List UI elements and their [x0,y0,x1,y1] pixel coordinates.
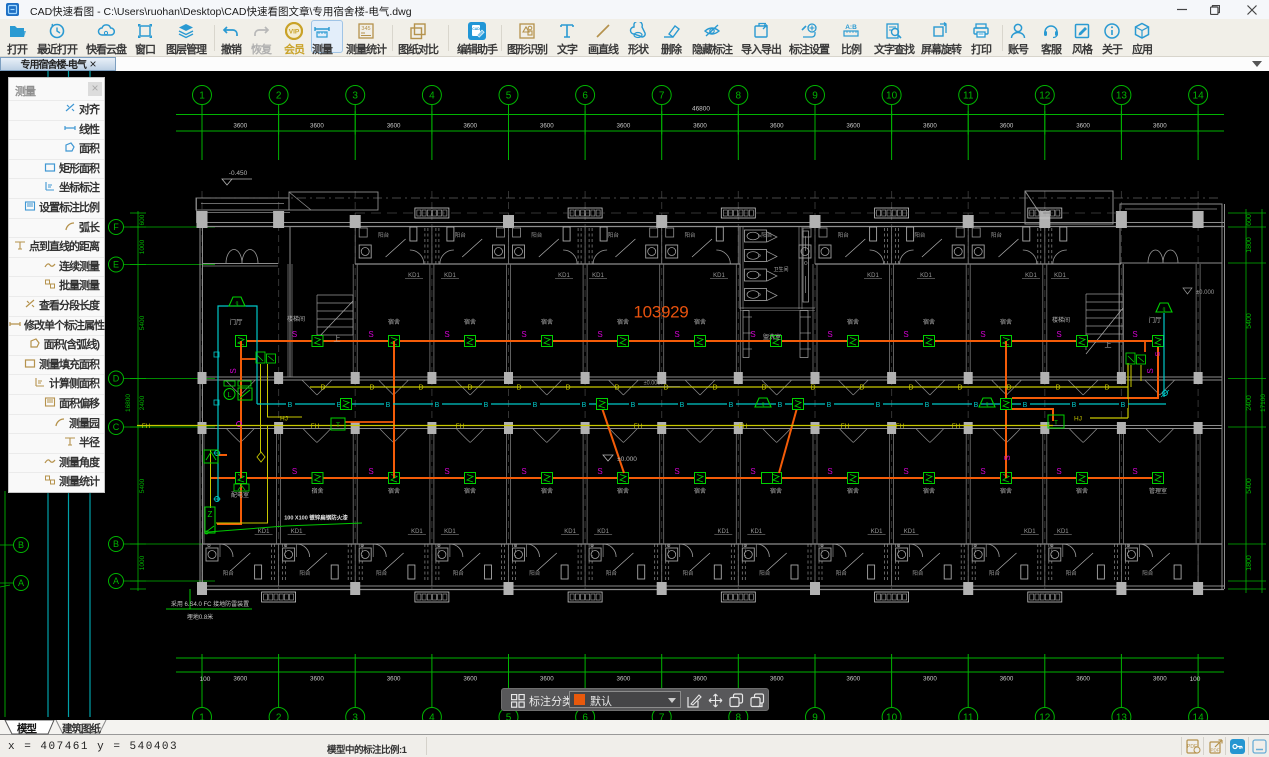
svg-text:100 X100 镀锌扁钢防火漆: 100 X100 镀锌扁钢防火漆 [284,514,348,522]
svg-text:宿舍: 宿舍 [617,318,629,326]
svg-text:宿舍: 宿舍 [923,318,935,326]
svg-text:B: B [925,402,930,409]
svg-text:11: 11 [963,713,974,721]
svg-text:CAD: CAD [472,27,480,31]
svg-text:2400: 2400 [1246,395,1253,411]
svg-text:D: D [1055,385,1060,392]
svg-text:KD1: KD1 [1024,529,1036,535]
svg-text:阳台: 阳台 [989,569,1001,577]
svg-text:3600: 3600 [617,123,631,130]
svg-text:阳台: 阳台 [531,231,543,239]
svg-text:E: E [113,260,119,270]
svg-text:B: B [729,402,734,409]
svg-text:T: T [336,422,340,429]
svg-text:S: S [903,330,908,339]
svg-text:KD1: KD1 [713,273,725,279]
svg-text:±0.000: ±0.000 [644,381,661,387]
svg-text:阳台: 阳台 [682,569,694,577]
svg-text:D: D [957,385,962,392]
svg-text:阳台: 阳台 [606,569,618,577]
svg-text:6: 6 [582,91,588,102]
svg-text:D: D [320,385,325,392]
svg-text:11: 11 [963,91,974,102]
svg-text:埋地0.8米: 埋地0.8米 [187,613,213,621]
svg-text:宿舍: 宿舍 [1076,487,1088,495]
svg-text:S: S [597,330,602,339]
svg-text:阳台: 阳台 [299,569,311,577]
svg-text:阳台: 阳台 [223,569,235,577]
svg-text:FH: FH [142,423,151,430]
svg-text:100: 100 [200,676,211,683]
svg-text:3600: 3600 [846,123,860,130]
svg-text:B: B [113,539,119,549]
svg-text:VIP: VIP [289,29,300,36]
svg-text:D: D [761,385,766,392]
svg-text:D: D [113,374,120,384]
svg-text:宿舍: 宿舍 [388,487,400,495]
svg-text:KD1: KD1 [592,273,604,279]
svg-text:S: S [980,467,985,476]
svg-text:3600: 3600 [923,676,937,683]
svg-text:B: B [680,402,685,409]
svg-text:HJ: HJ [1074,416,1082,423]
svg-text:KD1: KD1 [444,529,456,535]
svg-text:门厅: 门厅 [230,317,244,326]
svg-text:7: 7 [659,713,665,721]
svg-text:D: D [369,385,374,392]
svg-text:D: D [1104,385,1109,392]
svg-text:FH: FH [456,423,465,430]
svg-text:KD1: KD1 [867,273,879,279]
svg-text:PDF: PDF [1211,748,1220,753]
svg-text:KD1: KD1 [564,529,576,535]
svg-text:S: S [827,330,832,339]
svg-text:5: 5 [506,91,512,102]
svg-text:KD1: KD1 [411,529,423,535]
svg-text:FH: FH [634,423,643,430]
svg-text:KD1: KD1 [258,529,270,535]
svg-text:14: 14 [1193,91,1205,102]
svg-text:-0.450: -0.450 [229,170,248,177]
svg-text:宿舍: 宿舍 [388,318,400,326]
svg-text:S: S [750,467,755,476]
svg-text:17100: 17100 [1260,394,1267,412]
svg-text:S: S [292,467,297,476]
svg-text:2400: 2400 [139,395,146,410]
svg-text:KD1: KD1 [444,273,456,279]
svg-text:9: 9 [812,91,818,102]
svg-text:103929: 103929 [634,303,689,322]
svg-text:B: B [288,402,293,409]
svg-text:阳台: 阳台 [684,231,696,239]
svg-text:10: 10 [886,91,898,102]
svg-text:宿舍: 宿舍 [1000,318,1012,326]
svg-text:1: 1 [199,713,205,721]
svg-text:600: 600 [139,214,146,225]
svg-text:3600: 3600 [233,676,247,683]
svg-text:S: S [597,467,602,476]
svg-text:宿舍: 宿舍 [541,487,553,495]
svg-text:D: D [1006,385,1011,392]
svg-text:3600: 3600 [1076,123,1090,130]
svg-text:3600: 3600 [846,676,860,683]
svg-text:3600: 3600 [1153,676,1167,683]
svg-text:阳台: 阳台 [759,569,771,577]
svg-text:B: B [876,402,881,409]
svg-text:5400: 5400 [139,478,146,493]
svg-text:345: 345 [361,26,370,32]
svg-text:B: B [582,402,587,409]
svg-text:KD1: KD1 [904,529,916,535]
svg-text:KD1: KD1 [597,529,609,535]
svg-text:S: S [444,330,449,339]
svg-text:楼梯间: 楼梯间 [1052,316,1070,324]
svg-text:3600: 3600 [617,676,631,683]
svg-text:阳台: 阳台 [455,231,467,239]
svg-text:宿舍: 宿舍 [541,318,553,326]
svg-text:14: 14 [1193,713,1205,721]
svg-text:B: B [827,402,832,409]
svg-text:宿舍: 宿舍 [617,487,629,495]
svg-text:阳台: 阳台 [376,569,388,577]
svg-text:KD1: KD1 [558,273,570,279]
svg-text:B: B [435,402,440,409]
svg-text:3600: 3600 [387,676,401,683]
svg-text:阳台: 阳台 [836,569,848,577]
svg-text:S: S [674,467,679,476]
svg-text:12: 12 [1039,91,1051,102]
svg-text:宿舍: 宿舍 [311,487,323,495]
svg-text:B: B [631,402,636,409]
svg-text:T: T [1054,420,1058,427]
svg-text:16800: 16800 [125,394,132,412]
svg-text:3600: 3600 [1000,676,1014,683]
svg-text:3600: 3600 [770,123,784,130]
svg-text:管理室: 管理室 [1149,487,1167,495]
svg-text:S: S [368,330,373,339]
svg-text:宿舍: 宿舍 [1000,487,1012,495]
svg-text:KD1: KD1 [408,273,420,279]
svg-text:FH: FH [841,423,850,430]
svg-text:宿舍: 宿舍 [464,318,476,326]
svg-text:5400: 5400 [1246,313,1253,329]
svg-text:2: 2 [276,91,282,102]
svg-text:宿舍: 宿舍 [464,487,476,495]
svg-text:KD1: KD1 [717,529,729,535]
svg-text:B: B [18,540,24,550]
svg-text:3600: 3600 [310,676,324,683]
svg-text:KD1: KD1 [1057,529,1069,535]
svg-text:6: 6 [582,713,588,721]
svg-text:3600: 3600 [693,123,707,130]
svg-text:阳台: 阳台 [1066,569,1078,577]
svg-text:FH: FH [896,423,905,430]
svg-text:S: S [1056,330,1061,339]
svg-text:S: S [903,467,908,476]
svg-text:A: A [113,576,119,586]
svg-text:B: B [1121,402,1126,409]
svg-text:q: q [236,301,239,307]
svg-text:B: B [533,402,538,409]
svg-text:D: D [712,385,717,392]
svg-text:宿舍: 宿舍 [694,487,706,495]
svg-text:3600: 3600 [540,123,554,130]
svg-text:4: 4 [429,713,435,721]
svg-text:FH: FH [739,423,748,430]
svg-text:8: 8 [736,713,742,721]
svg-text:13: 13 [1116,91,1128,102]
svg-text:D: D [663,385,668,392]
svg-text:D: D [516,385,521,392]
svg-text:q: q [762,402,765,408]
svg-text:4: 4 [429,91,435,102]
svg-text:KD1: KD1 [871,529,883,535]
svg-text:S: S [827,467,832,476]
svg-text:S: S [674,330,679,339]
svg-text:上: 上 [334,334,341,343]
svg-text:q: q [1163,307,1166,313]
svg-text:KD1: KD1 [750,529,762,535]
svg-text:宿舍: 宿舍 [847,487,859,495]
svg-text:S: S [292,330,297,339]
svg-text:S: S [1132,330,1137,339]
svg-text:C: C [113,422,120,432]
svg-text:A:B: A:B [845,24,857,31]
svg-text:阳台: 阳台 [1142,569,1154,577]
svg-text:D: D [810,385,815,392]
svg-text:S: S [229,368,238,373]
svg-text:9: 9 [812,713,818,721]
svg-text:B: B [1072,402,1077,409]
svg-text:B: B [386,402,391,409]
svg-text:13: 13 [1116,713,1128,721]
svg-text:L: L [228,392,232,399]
svg-text:阳台: 阳台 [529,569,541,577]
svg-text:3600: 3600 [1153,123,1167,130]
svg-text:S: S [1056,467,1061,476]
svg-text:KD1: KD1 [920,273,932,279]
svg-text:阳台: 阳台 [838,231,850,239]
svg-text:B: B [974,402,979,409]
svg-text:D: D [565,385,570,392]
svg-text:A: A [18,578,24,588]
svg-text:阳台: 阳台 [608,231,620,239]
svg-text:5400: 5400 [139,315,146,330]
svg-text:S: S [444,467,449,476]
svg-text:S: S [980,330,985,339]
svg-text:3600: 3600 [387,123,401,130]
svg-text:7: 7 [659,91,665,102]
svg-text:1000: 1000 [139,555,146,570]
svg-text:12: 12 [1039,713,1051,721]
svg-text:楼梯间: 楼梯间 [287,315,305,323]
svg-text:阳台: 阳台 [378,231,390,239]
svg-text:1800: 1800 [1246,555,1253,571]
svg-text:±0.000: ±0.000 [1196,290,1215,296]
svg-text:D: D [418,385,423,392]
svg-text:q: q [986,402,989,408]
svg-text:S: S [521,330,526,339]
svg-text:S: S [1155,351,1162,356]
svg-text:D: D [614,385,619,392]
svg-text:阳台: 阳台 [761,231,773,239]
svg-text:±0.000: ±0.000 [617,456,637,463]
svg-text:600: 600 [1246,214,1253,226]
svg-text:1: 1 [199,91,205,102]
svg-text:100: 100 [1190,676,1201,683]
svg-text:3600: 3600 [540,676,554,683]
svg-text:B: B [484,402,489,409]
svg-text:3600: 3600 [923,123,937,130]
svg-text:D: D [467,385,472,392]
svg-text:3600: 3600 [233,123,247,130]
svg-text:FH: FH [952,423,961,430]
svg-text:3600: 3600 [463,676,477,683]
svg-text:KD1: KD1 [291,529,303,535]
svg-text:3600: 3600 [463,123,477,130]
svg-text:采用 6.S4.0 FC 接地防雷装置: 采用 6.S4.0 FC 接地防雷装置 [171,600,249,608]
svg-text:B: B [1023,402,1028,409]
svg-text:宿舍: 宿舍 [923,487,935,495]
svg-text:S: S [368,467,373,476]
svg-text:3600: 3600 [310,123,324,130]
svg-text:3: 3 [352,91,358,102]
svg-text:D: D [859,385,864,392]
svg-text:阳台: 阳台 [914,231,926,239]
svg-text:8: 8 [736,91,742,102]
svg-text:KD1: KD1 [1025,273,1037,279]
svg-text:门厅: 门厅 [1149,315,1163,324]
svg-text:3600: 3600 [1076,676,1090,683]
svg-text:2: 2 [276,713,282,721]
svg-text:1000: 1000 [139,239,146,254]
svg-text:阳台: 阳台 [453,569,465,577]
svg-text:宿舍: 宿舍 [770,487,782,495]
svg-text:10: 10 [886,713,898,721]
svg-text:盥洗室: 盥洗室 [763,333,781,341]
svg-text:卫生间: 卫生间 [773,266,788,273]
svg-text:阳台: 阳台 [991,231,1003,239]
svg-text:5400: 5400 [1246,478,1253,494]
svg-text:S: S [1146,368,1155,373]
svg-text:S: S [750,330,755,339]
svg-text:46800: 46800 [692,106,710,113]
svg-text:D: D [908,385,913,392]
svg-text:S: S [1132,467,1137,476]
svg-text:3: 3 [352,713,358,721]
svg-text:3600: 3600 [770,676,784,683]
svg-text:FH: FH [311,423,320,430]
svg-text:配电室: 配电室 [231,491,249,499]
svg-text:1800: 1800 [1246,237,1253,253]
svg-text:3600: 3600 [693,676,707,683]
svg-text:5: 5 [506,713,512,721]
svg-text:3600: 3600 [1000,123,1014,130]
svg-text:Z: Z [208,510,213,519]
svg-text:F: F [113,222,119,232]
svg-text:S: S [1003,455,1012,460]
svg-text:KD1: KD1 [1054,273,1066,279]
svg-text:宿舍: 宿舍 [694,318,706,326]
svg-text:宿舍: 宿舍 [847,318,859,326]
svg-text:B: B [778,402,783,409]
svg-text:阳台: 阳台 [912,569,924,577]
svg-text:S: S [521,467,526,476]
